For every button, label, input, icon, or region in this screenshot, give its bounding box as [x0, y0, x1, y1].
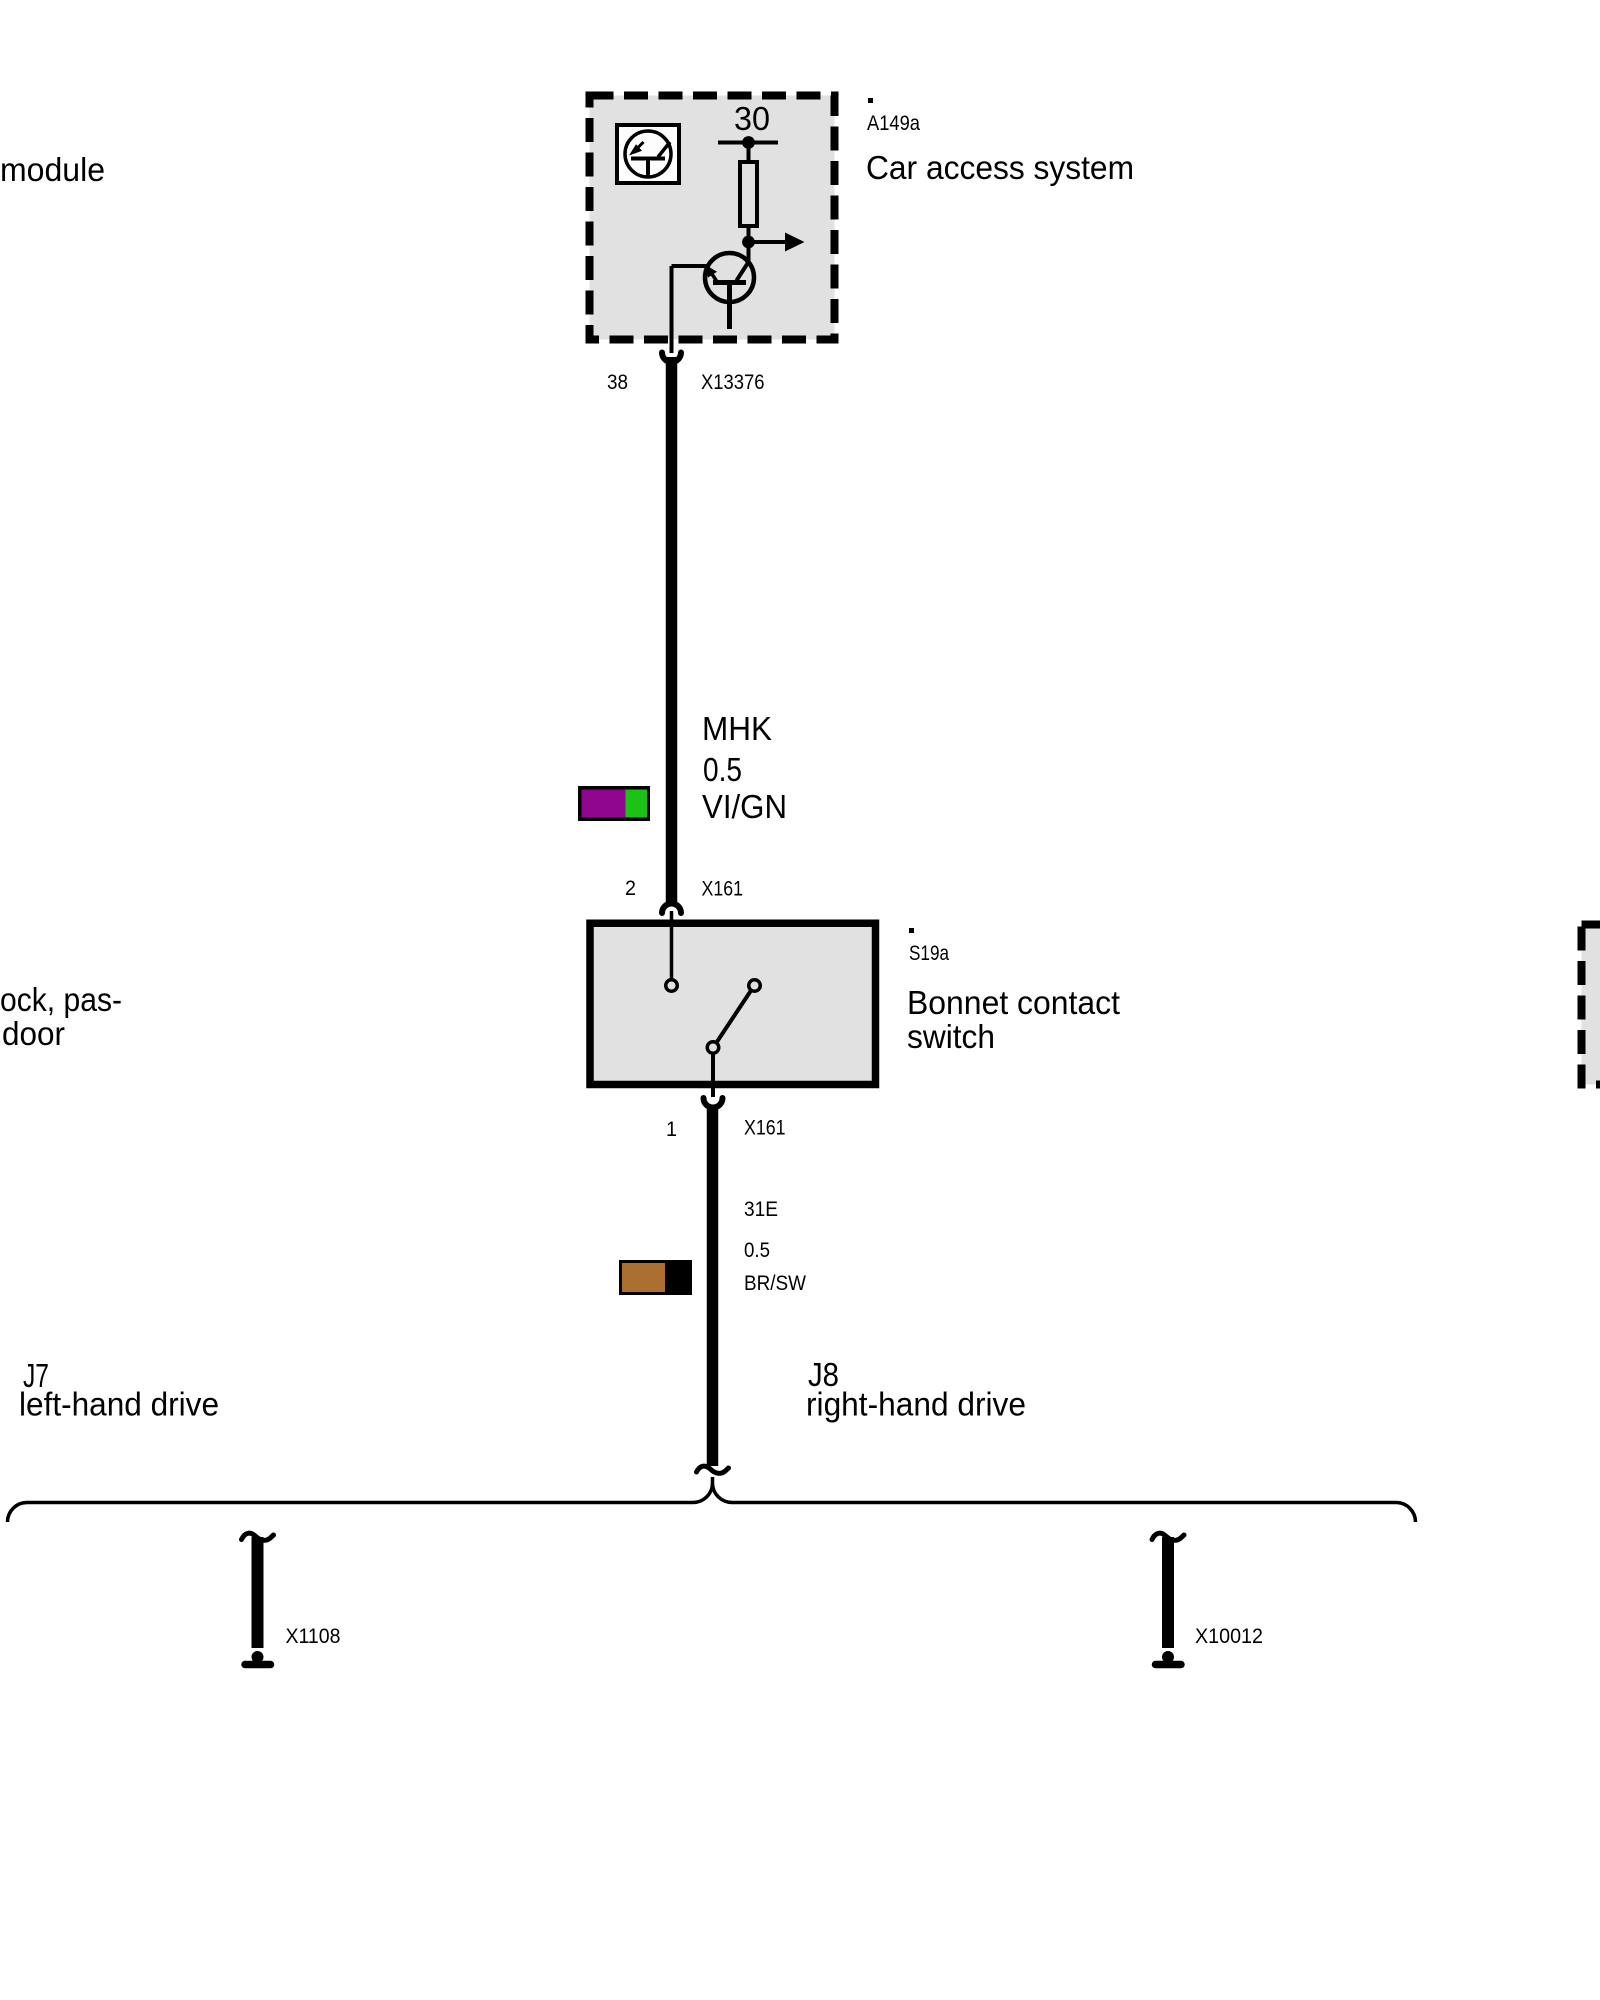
svg-text:Bonnet contact: Bonnet contact — [907, 984, 1120, 1021]
svg-text:ock, pas-: ock, pas- — [0, 981, 122, 1018]
svg-text:X1108: X1108 — [286, 1625, 341, 1648]
svg-text:BR/SW: BR/SW — [744, 1272, 806, 1295]
svg-text:31E: 31E — [744, 1198, 778, 1221]
svg-text:38: 38 — [607, 371, 628, 394]
svg-text:Car access system: Car access system — [866, 149, 1134, 186]
svg-text:MHK: MHK — [702, 710, 772, 747]
svg-text:X10012: X10012 — [1195, 1625, 1263, 1648]
svg-text:door: door — [2, 1015, 65, 1052]
svg-text:0.5: 0.5 — [744, 1239, 770, 1262]
svg-text:1: 1 — [666, 1118, 677, 1141]
svg-text:VI/GN: VI/GN — [702, 788, 787, 825]
svg-text:X13376: X13376 — [701, 371, 765, 394]
svg-text:switch: switch — [907, 1018, 995, 1055]
svg-text:2: 2 — [625, 877, 636, 900]
svg-text:30: 30 — [734, 100, 770, 137]
svg-text:X161: X161 — [702, 878, 744, 901]
svg-text:X161: X161 — [744, 1117, 786, 1140]
svg-text:module: module — [0, 151, 105, 188]
svg-text:left-hand drive: left-hand drive — [19, 1386, 219, 1423]
svg-text:0.5: 0.5 — [703, 751, 742, 788]
svg-text:A149a: A149a — [867, 112, 920, 135]
svg-text:right-hand drive: right-hand drive — [806, 1386, 1026, 1423]
svg-text:S19a: S19a — [909, 942, 949, 965]
